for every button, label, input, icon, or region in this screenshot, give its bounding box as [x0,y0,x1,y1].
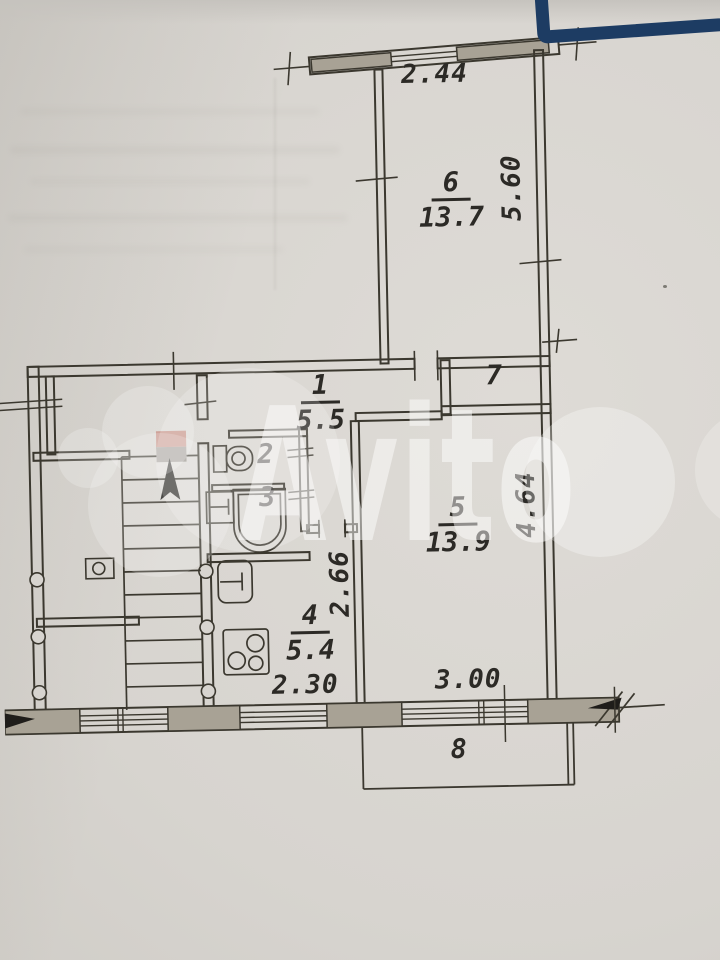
balcony-bottom-outline [362,723,574,789]
corridor-kitchen-walls [299,428,357,538]
room5-walls [351,411,448,705]
apartment-walls [27,328,585,711]
floor-plan-scan-photo: 2.44 5.60 4.64 2.66 2.30 3.00 6 13.7 7 1… [0,0,720,960]
plan-tilt-wrapper: 2.44 5.60 4.64 2.66 2.30 3.00 6 13.7 7 1… [0,0,720,960]
redaction-marker [156,431,187,463]
room6-walls [353,50,571,705]
bottom-exterior-wall [4,682,665,753]
kitchen-sink-icon [218,560,253,603]
toilet-icon [213,445,253,472]
bathtub-icon [233,489,286,553]
lobby-walls [0,375,141,701]
bathroom-block-walls [205,429,316,562]
floor-plan-drawing [0,0,720,960]
stairwell-wall [184,375,223,709]
stove-icon [223,629,269,675]
